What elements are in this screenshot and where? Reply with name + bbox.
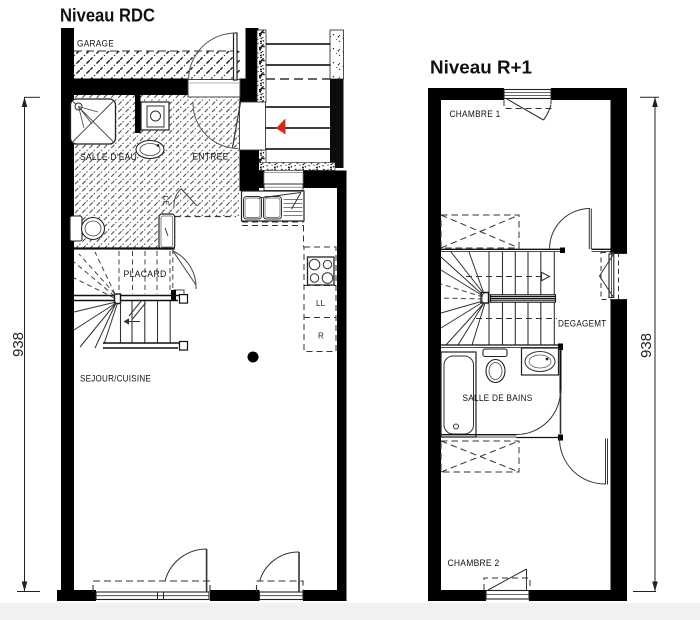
svg-text:SALLE D'EAU: SALLE D'EAU [80,152,137,163]
svg-text:PLACARD: PLACARD [124,269,167,280]
svg-text:Niveau R+1: Niveau R+1 [430,58,532,78]
svg-text:938: 938 [10,332,27,357]
svg-text:CHAMBRE 2: CHAMBRE 2 [448,558,500,569]
svg-text:SALLE DE BAINS: SALLE DE BAINS [463,393,533,404]
svg-text:R: R [318,332,324,341]
svg-text:GARAGE: GARAGE [77,39,114,50]
svg-text:CHAMBRE 1: CHAMBRE 1 [450,109,501,120]
svg-text:SEJOUR/CUISINE: SEJOUR/CUISINE [80,374,151,385]
svg-text:Niveau RDC: Niveau RDC [60,6,155,26]
svg-text:938: 938 [638,333,655,358]
svg-text:ENTREE: ENTREE [193,152,229,163]
svg-text:LL: LL [316,299,325,308]
svg-text:DEGAGEMT: DEGAGEMT [558,319,607,330]
svg-text:CE: CE [162,196,169,206]
